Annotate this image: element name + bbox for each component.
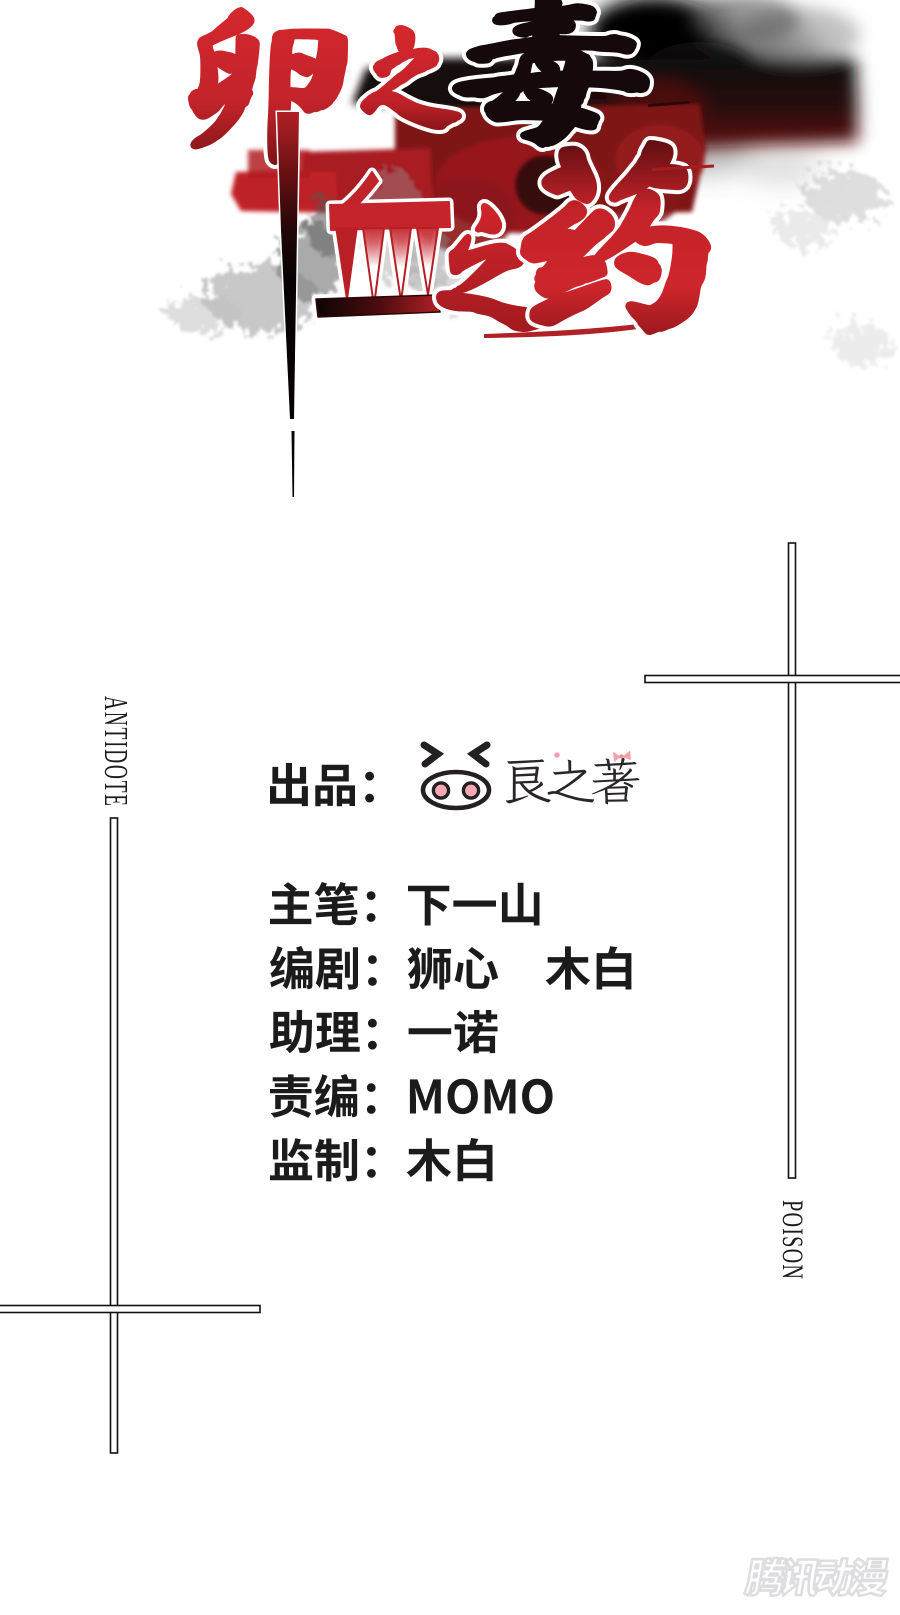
svg-text:ANTIDOTE: ANTIDOTE	[98, 696, 136, 808]
svg-text:POISON: POISON	[776, 1200, 810, 1280]
